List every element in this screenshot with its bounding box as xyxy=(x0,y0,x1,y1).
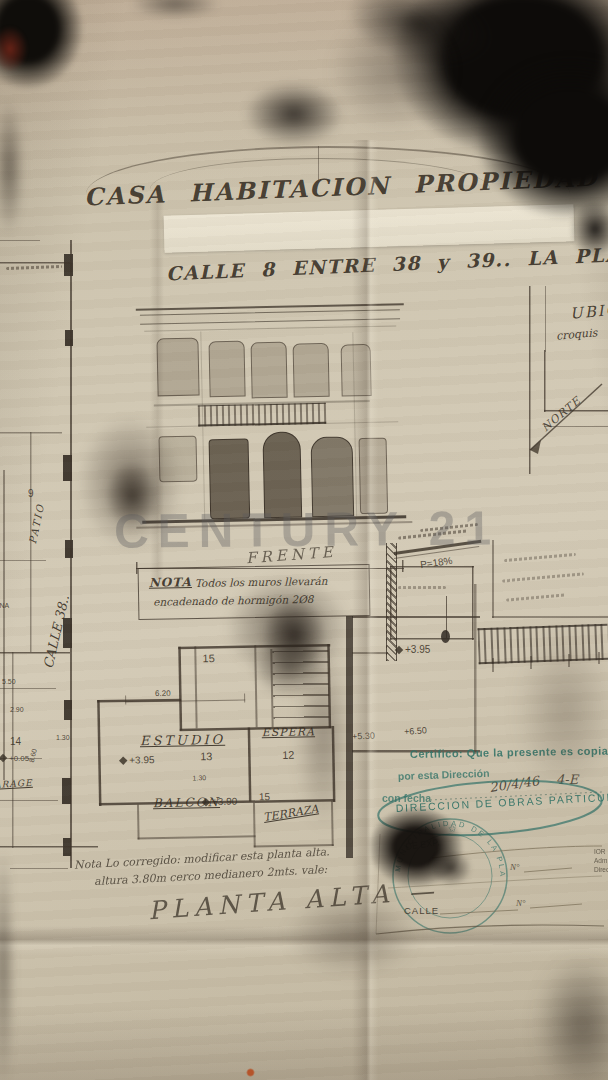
watermark: CENTURY 21 xyxy=(114,500,501,558)
blueprint-photo: CASA HABITACION PROPIEDAD DEL DOCTOR CAL… xyxy=(0,0,608,1080)
